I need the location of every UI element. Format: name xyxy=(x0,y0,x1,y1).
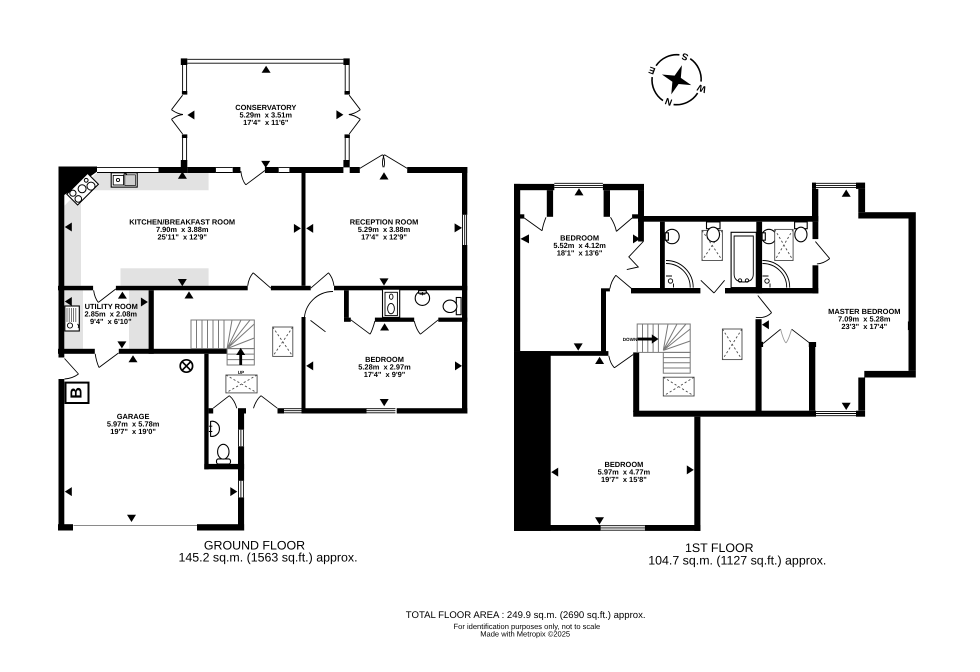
svg-text:B: B xyxy=(69,387,86,399)
svg-text:17'4" x 9'9": 17'4" x 9'9" xyxy=(364,370,406,379)
svg-text:19'7" x 15'8": 19'7" x 15'8" xyxy=(601,475,647,484)
svg-text:145.2 sq.m. (1563 sq.ft.) appr: 145.2 sq.m. (1563 sq.ft.) approx. xyxy=(178,551,357,565)
svg-text:25'11" x 12'9": 25'11" x 12'9" xyxy=(157,232,207,241)
svg-text:18'1" x 13'6": 18'1" x 13'6" xyxy=(557,248,603,257)
svg-text:UP: UP xyxy=(238,370,244,375)
svg-text:104.7 sq.m. (1127 sq.ft.) appr: 104.7 sq.m. (1127 sq.ft.) approx. xyxy=(648,554,826,568)
svg-text:17'4" x 11'6": 17'4" x 11'6" xyxy=(243,118,289,127)
svg-text:TOTAL FLOOR AREA : 249.9 sq.m.: TOTAL FLOOR AREA : 249.9 sq.m. (2690 sq.… xyxy=(406,610,646,621)
svg-text:17'4" x 12'9": 17'4" x 12'9" xyxy=(361,232,407,241)
svg-text:Made with Metropix ©2025: Made with Metropix ©2025 xyxy=(480,630,570,639)
svg-text:19'7" x 19'0": 19'7" x 19'0" xyxy=(110,427,156,436)
svg-text:DOWN: DOWN xyxy=(623,337,638,342)
svg-text:23'3" x 17'4": 23'3" x 17'4" xyxy=(841,322,887,331)
svg-text:9'4" x 6'10": 9'4" x 6'10" xyxy=(90,317,132,326)
